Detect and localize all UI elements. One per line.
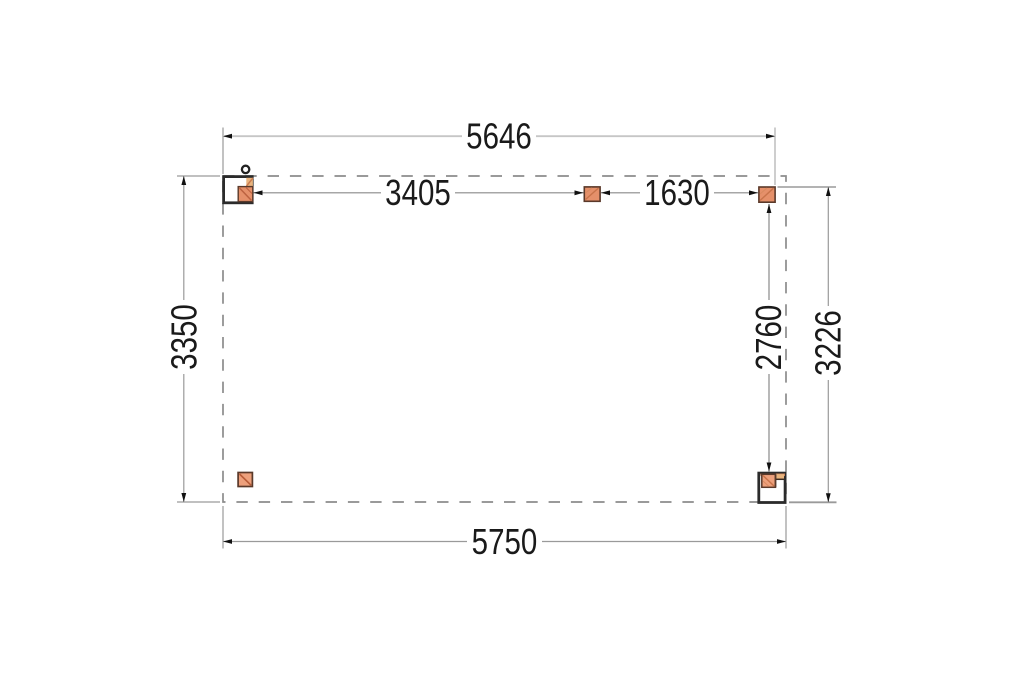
svg-text:5750: 5750	[472, 521, 538, 561]
svg-text:5646: 5646	[466, 116, 532, 156]
svg-text:3405: 3405	[385, 172, 451, 212]
svg-text:3226: 3226	[808, 310, 848, 376]
svg-text:3350: 3350	[163, 304, 203, 370]
svg-text:1630: 1630	[644, 172, 710, 212]
svg-text:2760: 2760	[748, 305, 788, 371]
